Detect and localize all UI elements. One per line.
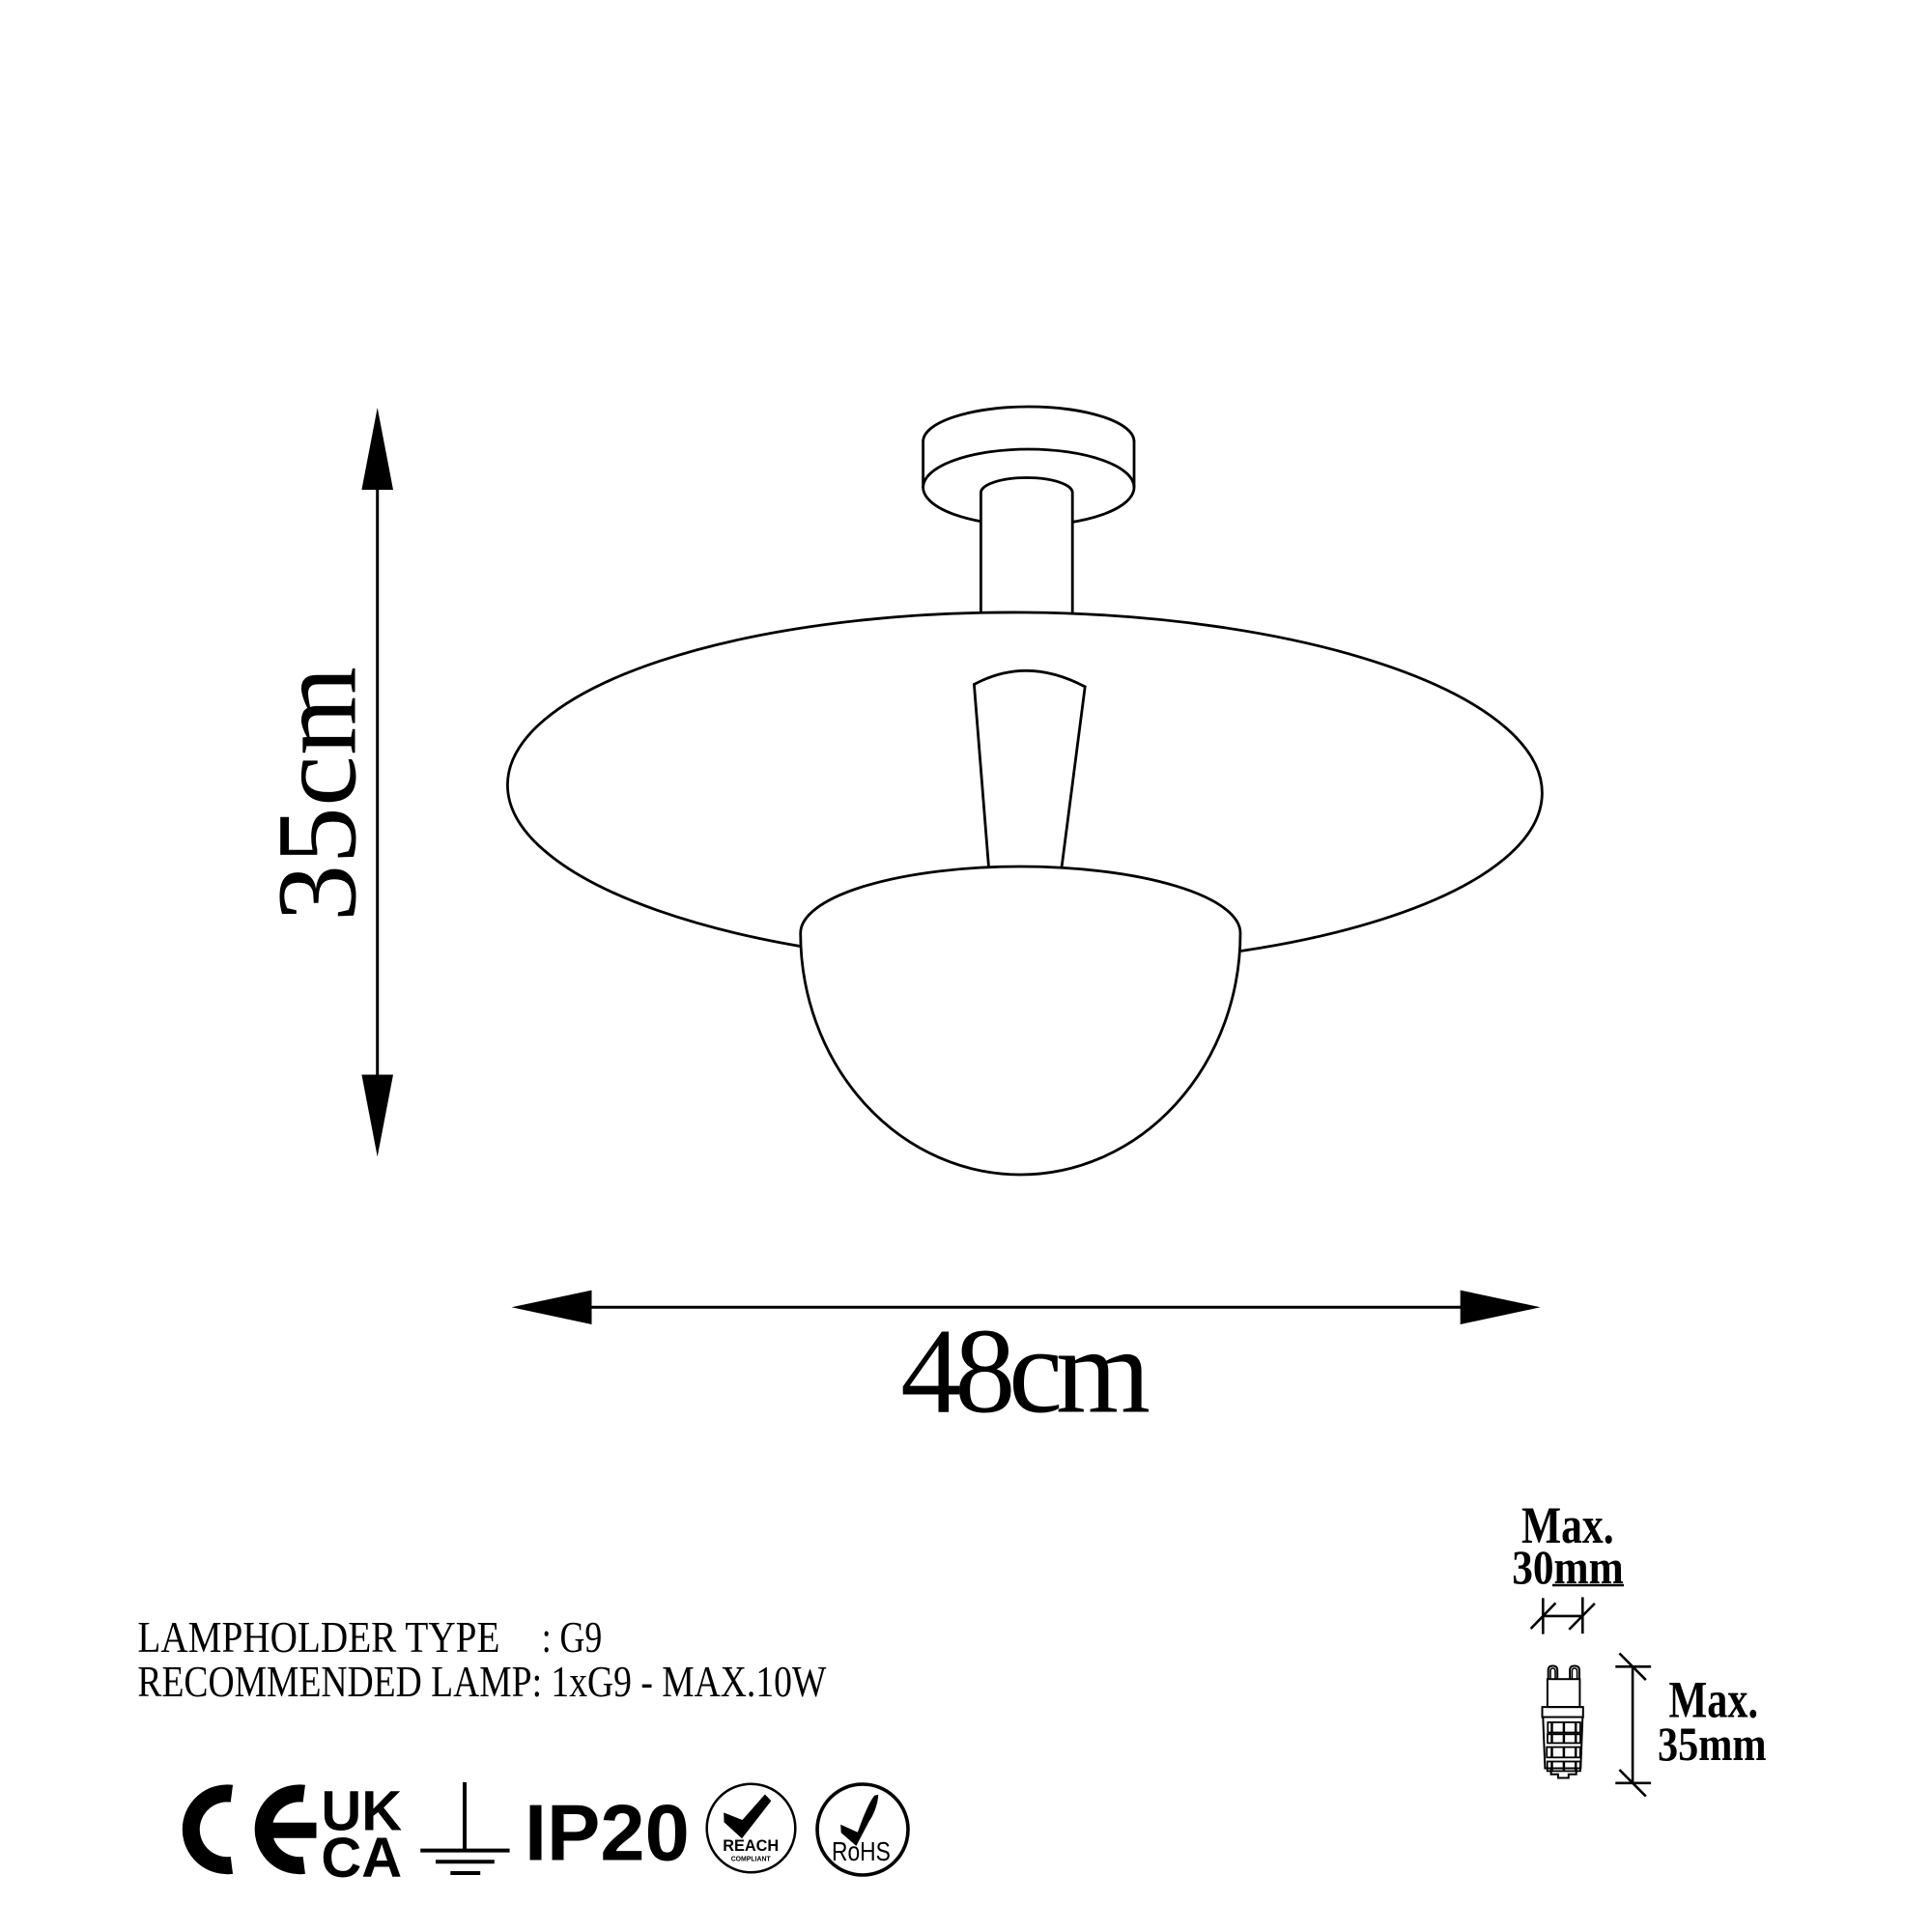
svg-text:LAMPHOLDER TYPE: LAMPHOLDER TYPE xyxy=(137,1612,499,1662)
svg-text:RoHS: RoHS xyxy=(832,1836,891,1866)
svg-text:35cm: 35cm xyxy=(254,667,381,922)
svg-text:35mm: 35mm xyxy=(1658,1717,1767,1771)
svg-text:: G9: : G9 xyxy=(542,1612,603,1662)
svg-text:IP20: IP20 xyxy=(525,1788,690,1878)
svg-text:48cm: 48cm xyxy=(900,1304,1151,1438)
svg-text:CA: CA xyxy=(321,1827,402,1889)
svg-text:RECOMMENDED LAMP: 1xG9 - MAX.1: RECOMMENDED LAMP: 1xG9 - MAX.10W xyxy=(137,1657,826,1706)
svg-text:REACH: REACH xyxy=(723,1837,779,1855)
svg-text:COMPLIANT: COMPLIANT xyxy=(731,1856,772,1862)
